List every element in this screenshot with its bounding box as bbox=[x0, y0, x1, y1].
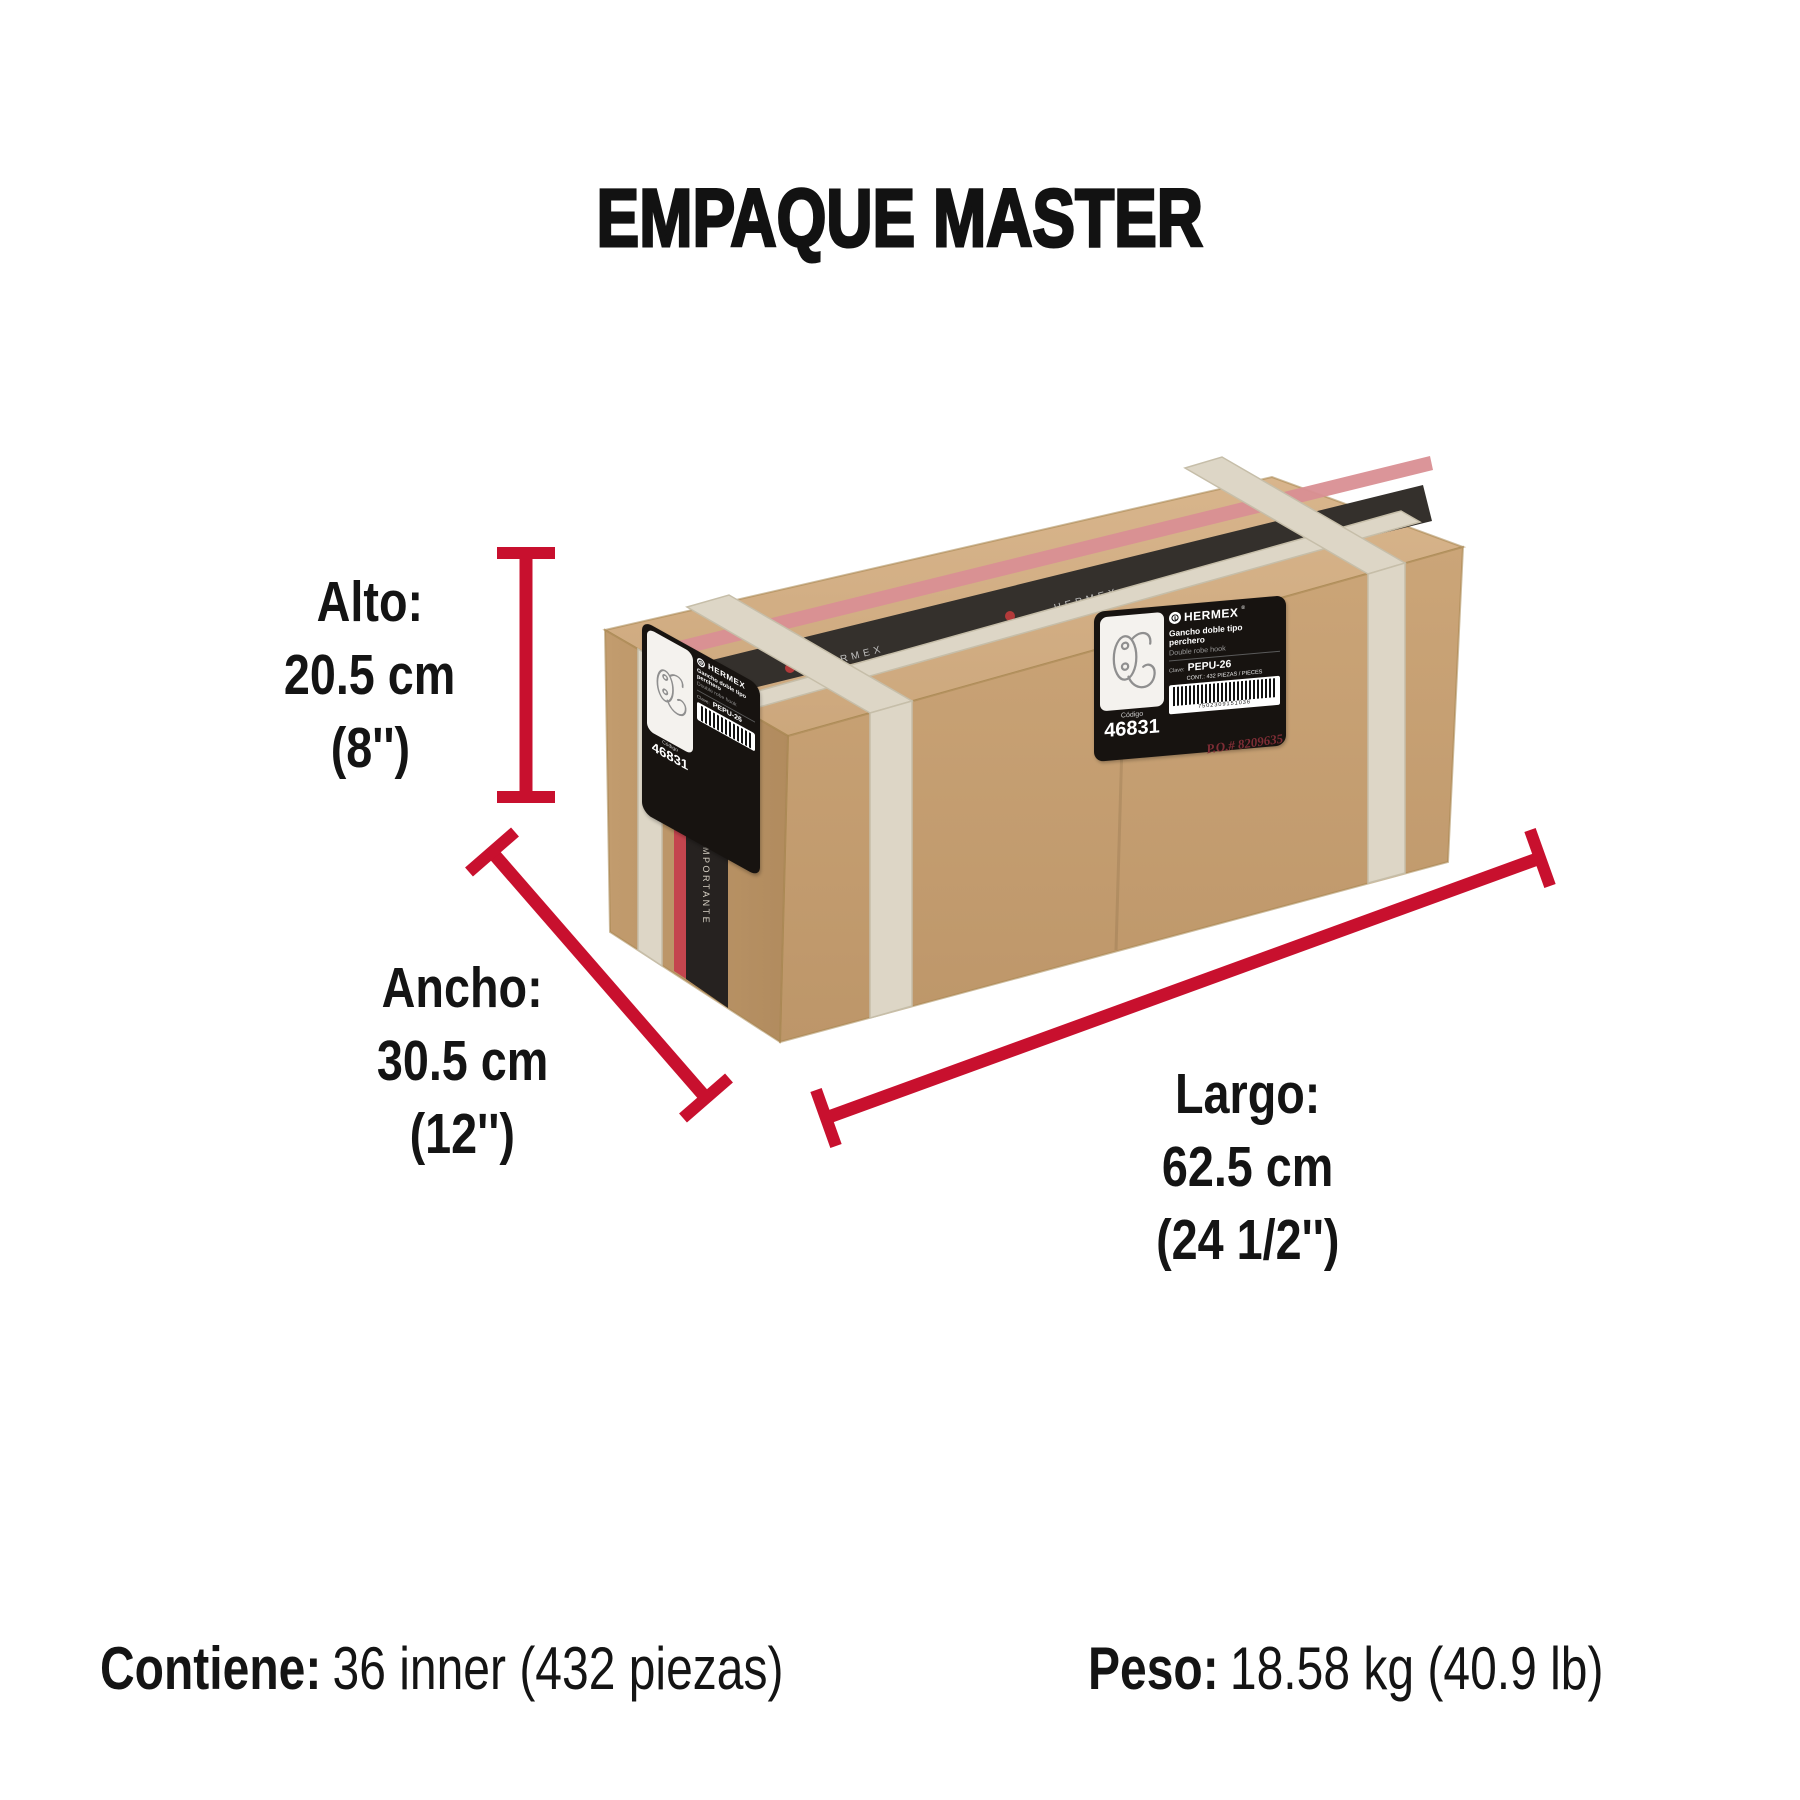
codigo-value: 46831 bbox=[1104, 716, 1160, 742]
empaque-master-page: EMPAQUE MASTER bbox=[0, 0, 1800, 1800]
hermex-logo-icon bbox=[1169, 611, 1181, 624]
label-text-column: HERMEX ® Gancho doble tipo perchero Doub… bbox=[1169, 602, 1280, 750]
peso-line: Peso:18.58 kg (40.9 lb) bbox=[1088, 1634, 1732, 1703]
robe-hook-icon bbox=[652, 647, 688, 737]
robe-hook-icon bbox=[1106, 618, 1158, 705]
ancho-label: Ancho: bbox=[382, 952, 543, 1025]
alto-label: Alto: bbox=[317, 566, 423, 639]
ancho-dimension: Ancho: 30.5 cm (12'') bbox=[290, 952, 635, 1171]
alto-inches: (8'') bbox=[330, 712, 409, 785]
ancho-cm: 30.5 cm bbox=[377, 1025, 549, 1098]
largo-inches: (24 1/2'') bbox=[1156, 1204, 1339, 1277]
largo-cm: 62.5 cm bbox=[1162, 1131, 1334, 1204]
largo-dimension: Largo: 62.5 cm (24 1/2'') bbox=[1055, 1058, 1440, 1277]
strap-vertical-text: IMPORTANTE bbox=[701, 842, 711, 925]
contiene-label: Contiene: bbox=[100, 1635, 321, 1702]
contiene-line: Contiene:36 inner (432 piezas) bbox=[100, 1634, 954, 1703]
product-drawing-box bbox=[1100, 612, 1164, 712]
alto-dimension: Alto: 20.5 cm (8'') bbox=[205, 566, 535, 785]
brand-registered-mark: ® bbox=[1241, 605, 1245, 611]
brand-name: HERMEX bbox=[1184, 605, 1238, 624]
clave-label: Clave: bbox=[1169, 668, 1185, 675]
girth-strap-right-front bbox=[1368, 563, 1405, 883]
carton-diagram: HERMEX HERMEX IMPORTANTE bbox=[0, 0, 1800, 1800]
label-text-column: HERMEX Gancho doble tipo perchero Double… bbox=[697, 655, 755, 869]
hermex-logo-icon bbox=[697, 656, 705, 668]
contiene-value: 36 inner (432 piezas) bbox=[333, 1635, 784, 1702]
girth-strap-left-front bbox=[870, 701, 912, 1018]
label-art-column: Código 46831 bbox=[647, 628, 693, 835]
label-art-column: Código 46831 bbox=[1100, 612, 1164, 756]
clave-value: PEPU-26 bbox=[1188, 658, 1232, 674]
alto-cm: 20.5 cm bbox=[284, 639, 456, 712]
peso-label: Peso: bbox=[1088, 1635, 1219, 1702]
largo-label: Largo: bbox=[1175, 1058, 1320, 1131]
peso-value: 18.58 kg (40.9 lb) bbox=[1230, 1635, 1604, 1702]
ancho-inches: (12'') bbox=[410, 1098, 515, 1171]
product-drawing-box bbox=[647, 628, 693, 755]
